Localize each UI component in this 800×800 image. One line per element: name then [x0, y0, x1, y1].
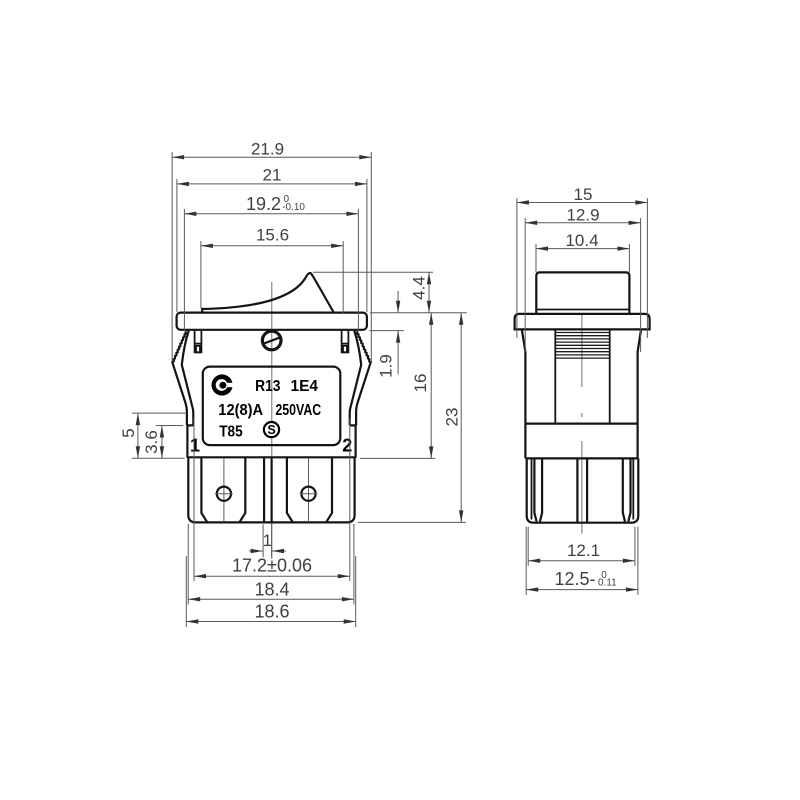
svg-text:T85: T85 — [219, 423, 243, 440]
svg-text:250VAC: 250VAC — [275, 402, 321, 419]
svg-text:15.6: 15.6 — [256, 225, 289, 244]
svg-text:23: 23 — [442, 408, 461, 427]
svg-text:12.9: 12.9 — [566, 205, 599, 224]
svg-text:17.2±0.06: 17.2±0.06 — [232, 556, 312, 576]
svg-text:3.6: 3.6 — [142, 430, 161, 454]
svg-text:1E4: 1E4 — [291, 378, 319, 395]
svg-text:12.5-: 12.5- — [555, 569, 596, 589]
svg-text:1.9: 1.9 — [377, 354, 396, 378]
svg-text:15: 15 — [574, 185, 593, 204]
svg-text:0.11: 0.11 — [598, 578, 617, 589]
svg-text:18.4: 18.4 — [254, 579, 289, 599]
svg-text:R13: R13 — [255, 378, 280, 395]
svg-text:5: 5 — [119, 428, 138, 437]
svg-text:10.4: 10.4 — [565, 231, 598, 250]
svg-text:1: 1 — [190, 436, 200, 456]
svg-text:12(8)A: 12(8)A — [218, 402, 263, 419]
svg-text:S: S — [267, 423, 275, 437]
svg-text:12.1: 12.1 — [567, 541, 600, 560]
svg-text:19.2: 19.2 — [246, 194, 281, 214]
svg-text:18.6: 18.6 — [254, 602, 289, 622]
svg-text:2: 2 — [342, 436, 352, 456]
svg-text:1: 1 — [263, 531, 272, 550]
svg-text:21: 21 — [263, 166, 282, 185]
svg-text:16: 16 — [411, 374, 430, 393]
svg-text:-0.10: -0.10 — [282, 202, 305, 213]
svg-text:4.4: 4.4 — [409, 276, 428, 300]
svg-text:21.9: 21.9 — [251, 139, 284, 158]
